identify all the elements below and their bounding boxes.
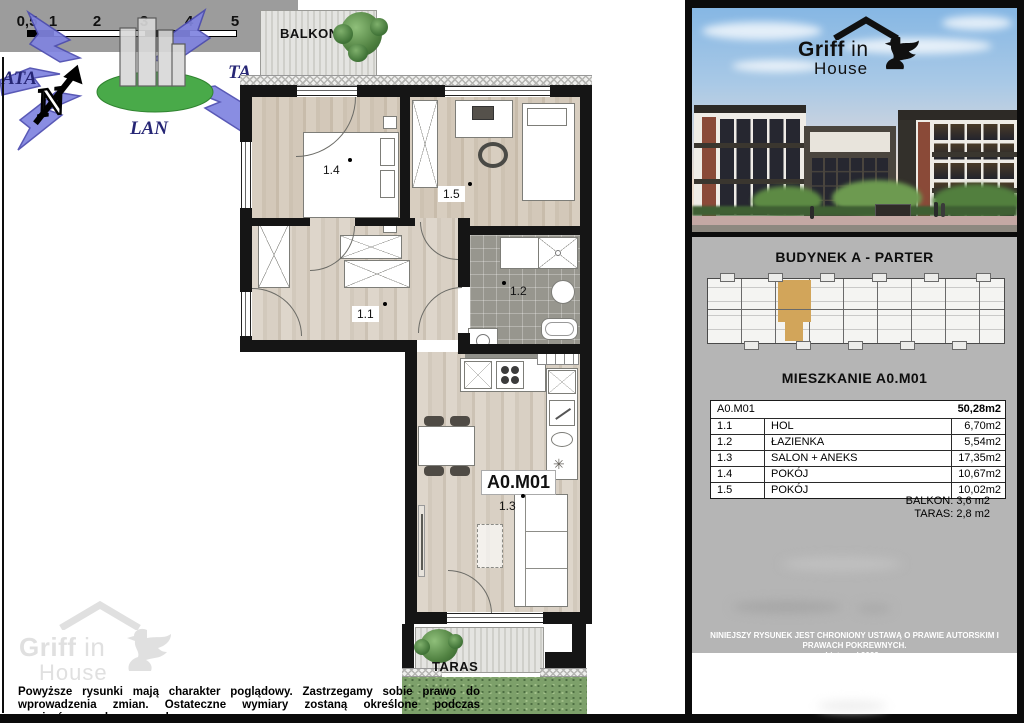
dining-chair <box>450 416 470 426</box>
dining-chair <box>450 466 470 476</box>
table-row: 1.1 HOL 6,70m2 <box>711 418 1005 434</box>
griffin-icon <box>113 626 175 682</box>
wall <box>543 612 592 624</box>
stove <box>496 361 524 389</box>
griffin-icon <box>874 34 922 78</box>
bed-pillow <box>380 138 395 166</box>
dining-table <box>418 426 475 466</box>
kitchen-cabinet-icon <box>548 370 576 394</box>
room-label-1-4: 1.4 <box>318 162 345 178</box>
disclaimer-line: Powyższe rysunki mają charakter poglądow… <box>18 686 480 712</box>
terrace-side-wall <box>402 624 414 668</box>
pedestrian <box>810 206 814 219</box>
marketing-sidebar: Griff in House <box>685 0 1024 723</box>
scale-tick-label: 0,5 <box>17 13 38 30</box>
street <box>692 225 1017 232</box>
portal-watermark-text-bottom: LAN <box>130 118 168 140</box>
info-panel: BUDYNEK A - PARTER MIESZKANIE A0.M01 <box>692 237 1017 653</box>
wall <box>405 352 417 624</box>
balcony-door-window <box>297 86 357 96</box>
strip-balcony-tab <box>820 273 835 282</box>
gray-corner-patch <box>0 0 298 52</box>
erased-smudge <box>857 604 891 613</box>
label-dot <box>383 302 387 306</box>
nightstand <box>383 116 397 129</box>
label-dot <box>348 158 352 162</box>
label-dot <box>521 494 525 498</box>
bathtub <box>541 318 578 340</box>
label-dot <box>468 182 472 186</box>
wall <box>465 226 580 235</box>
unit-id: A0.M01 <box>711 401 764 418</box>
wardrobe-icon <box>258 222 290 288</box>
unit-number-label: A0.M01 <box>481 470 556 495</box>
kitchen-sink-icon <box>464 361 492 389</box>
strip-balcony-tab <box>796 341 811 350</box>
balkon-note: BALKON: 3,6 m2 <box>906 495 990 507</box>
terrace-hatch <box>540 668 587 677</box>
room-label-1-3: 1.3 <box>494 498 521 514</box>
wall <box>355 218 415 226</box>
griffin-house-logo: Griff in House <box>782 14 942 78</box>
sidebar-white-strip <box>692 653 1017 714</box>
dining-chair <box>424 416 444 426</box>
wall <box>458 218 470 226</box>
area-table-header: A0.M01 50,28m2 <box>711 401 1005 418</box>
strip-balcony-tab <box>872 273 887 282</box>
scale-segment <box>145 31 190 36</box>
brand-line2: House <box>814 59 868 79</box>
room-label-1-2: 1.2 <box>505 283 532 299</box>
floorplan-sheet: 0,5 1 2 3 4 5 AT <box>0 0 1024 723</box>
balcony-plant-icon <box>340 12 382 56</box>
pedestrian <box>934 202 938 217</box>
scale-segment <box>28 31 54 36</box>
wall <box>458 344 580 354</box>
kitchen-icon-row <box>537 353 579 365</box>
sidewalk <box>692 216 1017 225</box>
strip-balcony-tab <box>976 273 991 282</box>
apartment-title: MIESZKANIE A0.M01 <box>692 370 1017 386</box>
wall <box>400 97 410 226</box>
table-row: 1.3 SALON + ANEKS 17,35m2 <box>711 450 1005 466</box>
strip-balcony-tab <box>768 273 783 282</box>
wall <box>550 85 592 97</box>
entry-door-opening <box>241 292 251 336</box>
bed-pillow <box>380 170 395 198</box>
north-arrow-icon: N <box>24 64 90 130</box>
strip-balcony-tab <box>952 341 967 350</box>
table-row: 1.4 POKÓJ 10,67m2 <box>711 466 1005 482</box>
window <box>241 142 251 208</box>
wall <box>580 97 592 624</box>
brand-line2: House <box>39 660 108 686</box>
faint-smudge <box>817 701 887 711</box>
terrace-side-wall <box>545 652 585 668</box>
scale-tick-label: 3 <box>140 13 148 30</box>
wall <box>458 226 470 287</box>
terrace-door-window <box>447 613 543 623</box>
label-dot <box>502 281 506 285</box>
sheet-border-line <box>2 57 4 713</box>
coffee-table <box>477 524 503 568</box>
kitchen-sink-unit <box>549 400 575 426</box>
kitchen-hob-oval <box>551 432 573 447</box>
hedge <box>692 206 1017 216</box>
building-title: BUDYNEK A - PARTER <box>692 249 1017 265</box>
erased-smudge <box>782 557 902 571</box>
scale-tick-label: 1 <box>49 13 57 30</box>
sofa <box>514 494 568 607</box>
washbasin <box>551 280 575 304</box>
wall <box>240 97 252 142</box>
window <box>445 86 550 96</box>
shower-drain-icon <box>555 250 561 256</box>
table-row: 1.2 ŁAZIENKA 5,54m2 <box>711 434 1005 450</box>
laptop-icon <box>472 106 494 120</box>
griffin-house-watermark: Griff in House <box>15 598 185 688</box>
pedestrian <box>941 203 945 217</box>
scale-tick-label: 2 <box>93 13 101 30</box>
total-area: 50,28m2 <box>952 401 1005 418</box>
hall-cabinet-icon <box>344 260 410 288</box>
terrace-plant-icon <box>420 629 458 663</box>
wardrobe-icon <box>412 100 438 188</box>
bed-pillow <box>527 108 567 126</box>
building-render-photo: Griff in House <box>692 8 1017 232</box>
room-label-1-1: 1.1 <box>352 306 379 322</box>
desk-chair <box>478 142 508 168</box>
floor-strip-plan <box>707 278 1005 344</box>
wall <box>357 85 445 97</box>
room-label-1-5: 1.5 <box>438 186 465 202</box>
strip-balcony-tab <box>848 341 863 350</box>
strip-balcony-tab <box>744 341 759 350</box>
strip-balcony-tab <box>924 273 939 282</box>
balcony-label: BALKON <box>280 26 339 41</box>
wall <box>240 85 297 97</box>
terrace-label: TARAS <box>432 659 478 674</box>
wall <box>240 340 417 352</box>
wall <box>252 218 310 226</box>
tv-panel <box>418 505 425 577</box>
cloud <box>942 16 1012 30</box>
highlighted-unit <box>778 280 811 322</box>
wall <box>405 612 447 624</box>
strip-balcony-tab <box>720 273 735 282</box>
scale-tick-label: 5 <box>231 13 239 30</box>
wall <box>240 208 252 292</box>
taras-note: TARAS: 2,8 m2 <box>914 508 990 520</box>
erased-smudge <box>732 601 842 613</box>
highlighted-unit-stem <box>785 322 803 341</box>
dining-chair <box>424 466 444 476</box>
scale-bar-rule <box>27 30 237 37</box>
scale-tick-label: 4 <box>185 13 193 30</box>
brand-line1: Griff in <box>19 632 105 663</box>
strip-balcony-tab <box>900 341 915 350</box>
area-table: A0.M01 50,28m2 1.1 HOL 6,70m2 1.2 ŁAZIEN… <box>710 400 1006 499</box>
